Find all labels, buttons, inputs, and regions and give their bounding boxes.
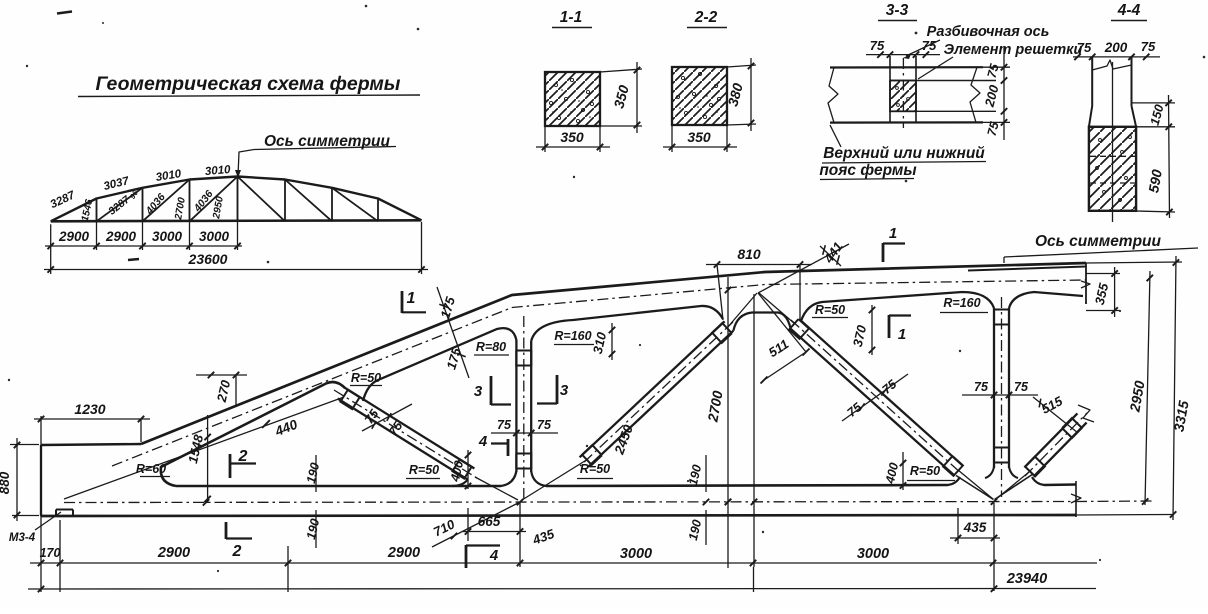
svg-text:2900: 2900 — [105, 229, 137, 244]
svg-text:880: 880 — [0, 471, 12, 494]
svg-text:R=160: R=160 — [554, 329, 591, 343]
svg-text:200: 200 — [1104, 40, 1128, 55]
svg-text:М3-4: М3-4 — [9, 532, 36, 544]
svg-text:3010: 3010 — [204, 164, 231, 178]
svg-text:2: 2 — [232, 543, 242, 560]
svg-text:1: 1 — [898, 326, 906, 343]
svg-text:435: 435 — [963, 520, 987, 535]
svg-text:3: 3 — [560, 382, 569, 399]
svg-text:3: 3 — [474, 383, 483, 400]
svg-text:Разбивочная ось: Разбивочная ось — [927, 24, 1050, 40]
svg-text:2-2: 2-2 — [694, 9, 718, 26]
svg-text:3000: 3000 — [152, 229, 183, 244]
svg-text:4: 4 — [489, 547, 499, 564]
svg-text:665: 665 — [478, 514, 501, 529]
svg-text:75: 75 — [1014, 380, 1029, 394]
svg-text:75: 75 — [537, 418, 552, 432]
svg-text:1: 1 — [407, 290, 416, 307]
svg-text:3-3: 3-3 — [886, 2, 909, 19]
svg-text:R=60: R=60 — [136, 462, 166, 476]
svg-text:R=160: R=160 — [943, 296, 980, 310]
svg-text:пояс фермы: пояс фермы — [819, 162, 916, 179]
svg-text:4: 4 — [478, 433, 488, 450]
svg-text:R=50: R=50 — [580, 462, 610, 476]
svg-text:1-1: 1-1 — [560, 9, 582, 26]
svg-text:1230: 1230 — [74, 401, 105, 417]
svg-text:R=50: R=50 — [815, 303, 845, 317]
svg-text:3000: 3000 — [857, 546, 889, 562]
svg-text:R=50: R=50 — [409, 463, 439, 477]
svg-text:2900: 2900 — [157, 545, 190, 561]
svg-text:4-4: 4-4 — [1117, 2, 1141, 19]
svg-text:170: 170 — [40, 546, 61, 560]
svg-text:3000: 3000 — [620, 546, 652, 562]
svg-text:R=80: R=80 — [476, 340, 506, 354]
svg-text:Геометрическая схема фермы: Геометрическая схема фермы — [96, 73, 401, 95]
svg-text:2900: 2900 — [58, 229, 90, 244]
svg-text:1: 1 — [889, 225, 897, 242]
svg-text:75: 75 — [974, 380, 989, 394]
svg-text:810: 810 — [737, 246, 761, 262]
svg-text:23940: 23940 — [1006, 571, 1047, 587]
svg-text:75: 75 — [1141, 39, 1156, 54]
svg-text:Ось симметрии: Ось симметрии — [1035, 233, 1162, 250]
svg-text:23600: 23600 — [188, 251, 228, 267]
svg-text:3000: 3000 — [199, 229, 230, 244]
svg-text:R=50: R=50 — [351, 371, 381, 385]
svg-text:2: 2 — [238, 448, 248, 465]
svg-text:2900: 2900 — [387, 545, 420, 561]
svg-text:Верхний или нижний: Верхний или нижний — [823, 145, 985, 162]
svg-text:R=50: R=50 — [910, 464, 940, 478]
svg-text:75: 75 — [1077, 40, 1092, 55]
svg-text:75: 75 — [497, 418, 512, 432]
svg-text:75: 75 — [870, 38, 885, 53]
svg-text:Элемент решетки: Элемент решетки — [944, 42, 1083, 58]
svg-text:350: 350 — [560, 129, 584, 145]
svg-text:350: 350 — [687, 129, 711, 145]
